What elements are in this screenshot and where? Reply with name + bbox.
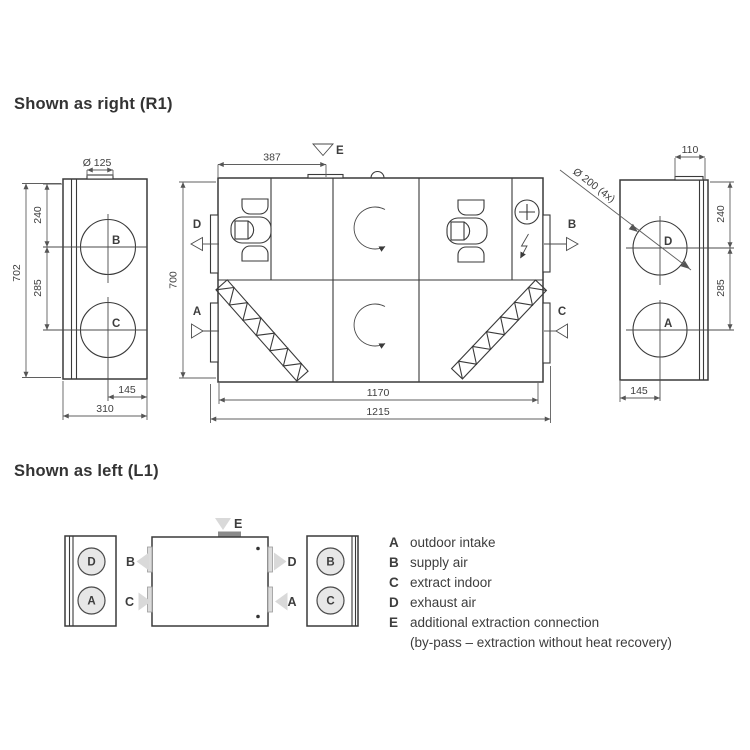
dim-310: 310	[96, 403, 114, 415]
flow-label-e: E	[336, 145, 344, 157]
flow-label-d: D	[193, 219, 201, 231]
marker-e-icon	[313, 144, 333, 156]
port-label-d: D	[664, 236, 672, 248]
port-label-a: A	[664, 318, 672, 330]
port-label-c: C	[112, 318, 120, 330]
legend-text: exhaust air	[410, 593, 476, 613]
airflow-arrow-d	[274, 553, 287, 571]
dim-240-left: 240	[32, 206, 44, 224]
legend-key	[389, 633, 410, 653]
legend-item: E additional extraction connection	[389, 613, 672, 633]
dim-dia125: Ø 125	[83, 157, 112, 169]
marker-e-icon	[215, 518, 231, 530]
airflow-arrow-b	[137, 553, 150, 571]
l1-left-label-a: A	[87, 596, 95, 608]
legend-key: C	[389, 573, 410, 593]
legend-key: E	[389, 613, 410, 633]
legend-item: (by-pass – extraction without heat recov…	[389, 633, 672, 653]
legend-key: D	[389, 593, 410, 613]
legend-item: D exhaust air	[389, 593, 672, 613]
dim-dia200: Ø 200 (4x)	[570, 166, 617, 206]
l1-flow-label-b: B	[126, 555, 135, 569]
l1-left-port-box: D A	[65, 536, 116, 626]
top-stub-right	[675, 177, 703, 181]
airflow-arrow-b	[567, 238, 579, 251]
lightning-icon	[521, 234, 529, 258]
dim-285-right: 285	[715, 279, 727, 297]
l1-diagram: E D A B	[65, 517, 358, 626]
leader-arrow	[629, 224, 638, 232]
airflow-arrow-c	[556, 324, 568, 338]
legend-key: A	[389, 533, 410, 553]
legend-item: A outdoor intake	[389, 533, 672, 553]
dim-387: 387	[263, 152, 281, 164]
l1-label-e: E	[234, 517, 242, 531]
top-bump	[371, 172, 384, 178]
bypass-connection-e	[308, 175, 343, 179]
screw-dot	[256, 615, 260, 619]
l1-right-label-c: C	[326, 596, 334, 608]
legend-text: supply air	[410, 553, 468, 573]
leader-arrow	[681, 261, 690, 269]
legend: A outdoor intake B supply air C extract …	[389, 533, 672, 653]
r1-front-view: D A B C E 387 700 1170	[168, 144, 579, 423]
duct-stub-c	[543, 303, 550, 363]
dim-702: 702	[11, 264, 23, 282]
dim-145-left: 145	[118, 384, 136, 396]
airflow-arrow-d	[191, 238, 203, 251]
l1-flow-label-d: D	[287, 555, 296, 569]
legend-item: B supply air	[389, 553, 672, 573]
legend-item: C extract indoor	[389, 573, 672, 593]
l1-flow-label-a: A	[287, 595, 296, 609]
l1-right-label-b: B	[326, 557, 334, 569]
dim-1215: 1215	[366, 406, 390, 418]
duct-stub-a	[211, 303, 219, 362]
dim-700: 700	[168, 271, 180, 289]
bypass-stub-top	[87, 175, 113, 179]
l1-unit-box: B C D A	[125, 532, 297, 627]
legend-text: extract indoor	[410, 573, 492, 593]
legend-key: B	[389, 553, 410, 573]
port-label-b: B	[112, 235, 120, 247]
flow-label-a: A	[193, 306, 201, 318]
l1-right-port-box: B C	[307, 536, 358, 626]
r1-left-side-view: B C Ø 125 702 240 285 145 310	[11, 157, 147, 420]
legend-text: outdoor intake	[410, 533, 496, 553]
airflow-arrow-a	[275, 593, 288, 611]
legend-text: additional extraction connection	[410, 613, 599, 633]
dim-285-left: 285	[32, 279, 44, 297]
r1-right-side-view: D A Ø 200 (4x) 110 240 285 145	[560, 144, 734, 402]
bypass-stub	[218, 532, 241, 538]
legend-text: (by-pass – extraction without heat recov…	[410, 633, 672, 653]
l1-flow-label-c: C	[125, 595, 134, 609]
dim-110: 110	[682, 144, 699, 156]
airflow-arrow-a	[192, 324, 204, 338]
dim-145-right: 145	[630, 385, 648, 397]
l1-left-label-d: D	[87, 557, 95, 569]
duct-stub-b	[543, 215, 550, 272]
screw-dot	[256, 547, 260, 551]
page: Shown as right (R1) Shown as left (L1)	[0, 0, 750, 750]
dim-1170: 1170	[367, 387, 390, 399]
flow-label-b: B	[568, 219, 576, 231]
dim-240-right: 240	[715, 205, 727, 223]
flow-label-c: C	[558, 306, 566, 318]
